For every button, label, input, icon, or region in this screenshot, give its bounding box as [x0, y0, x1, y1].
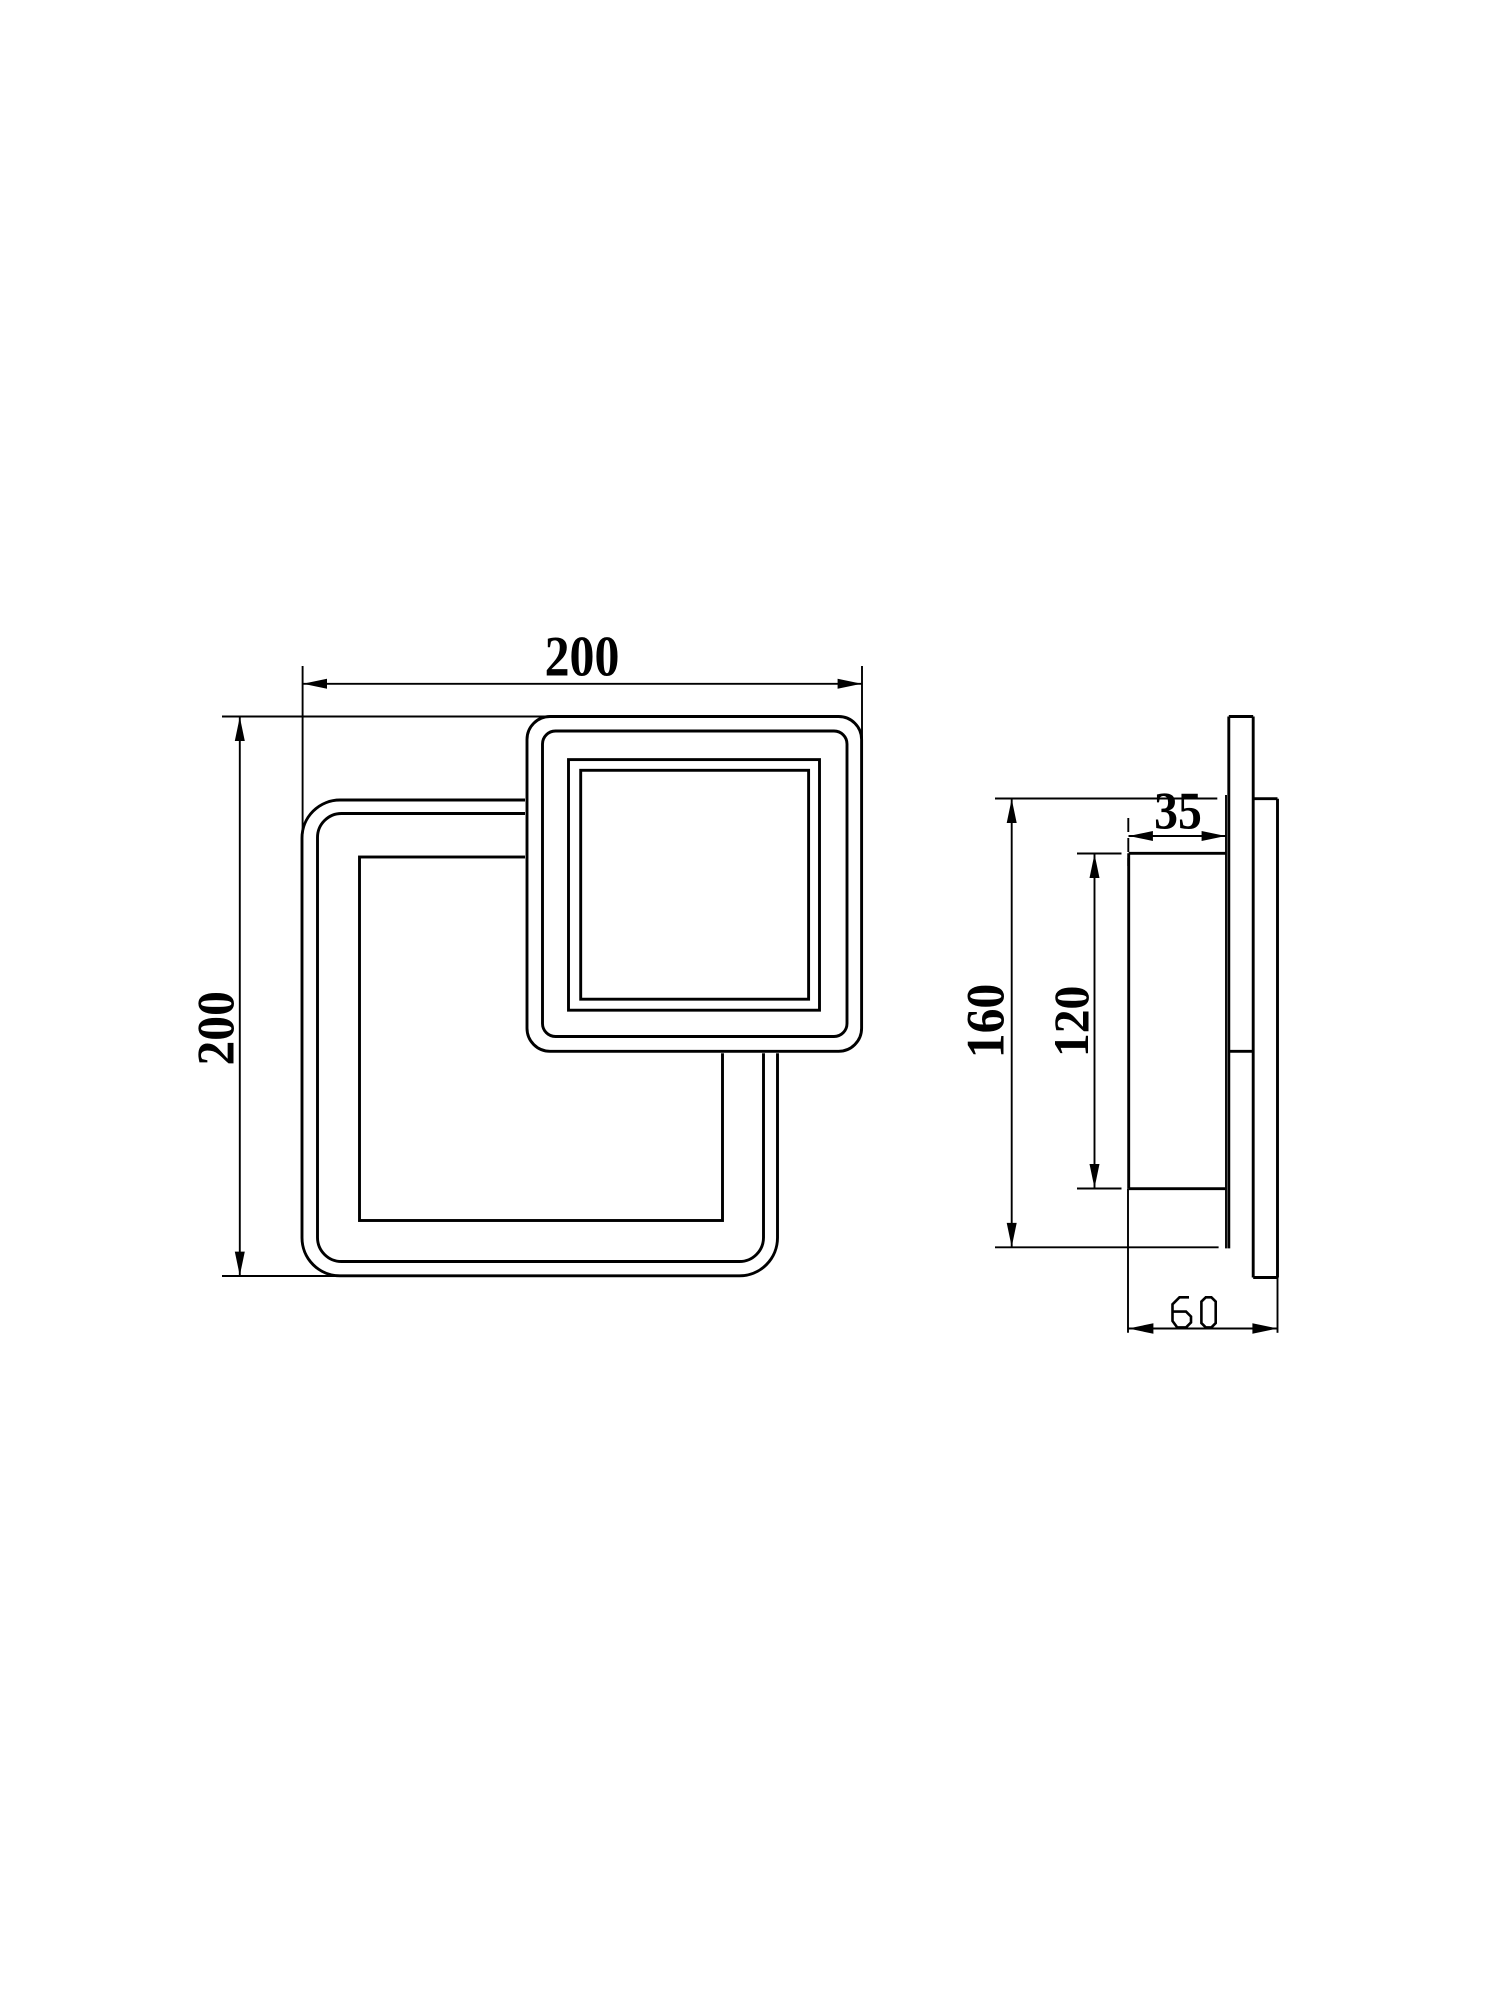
svg-text:200: 200 [187, 991, 246, 1065]
svg-text:35: 35 [1154, 781, 1202, 840]
svg-text:120: 120 [1044, 986, 1099, 1057]
svg-text:160: 160 [957, 984, 1016, 1059]
svg-text:200: 200 [545, 625, 620, 689]
